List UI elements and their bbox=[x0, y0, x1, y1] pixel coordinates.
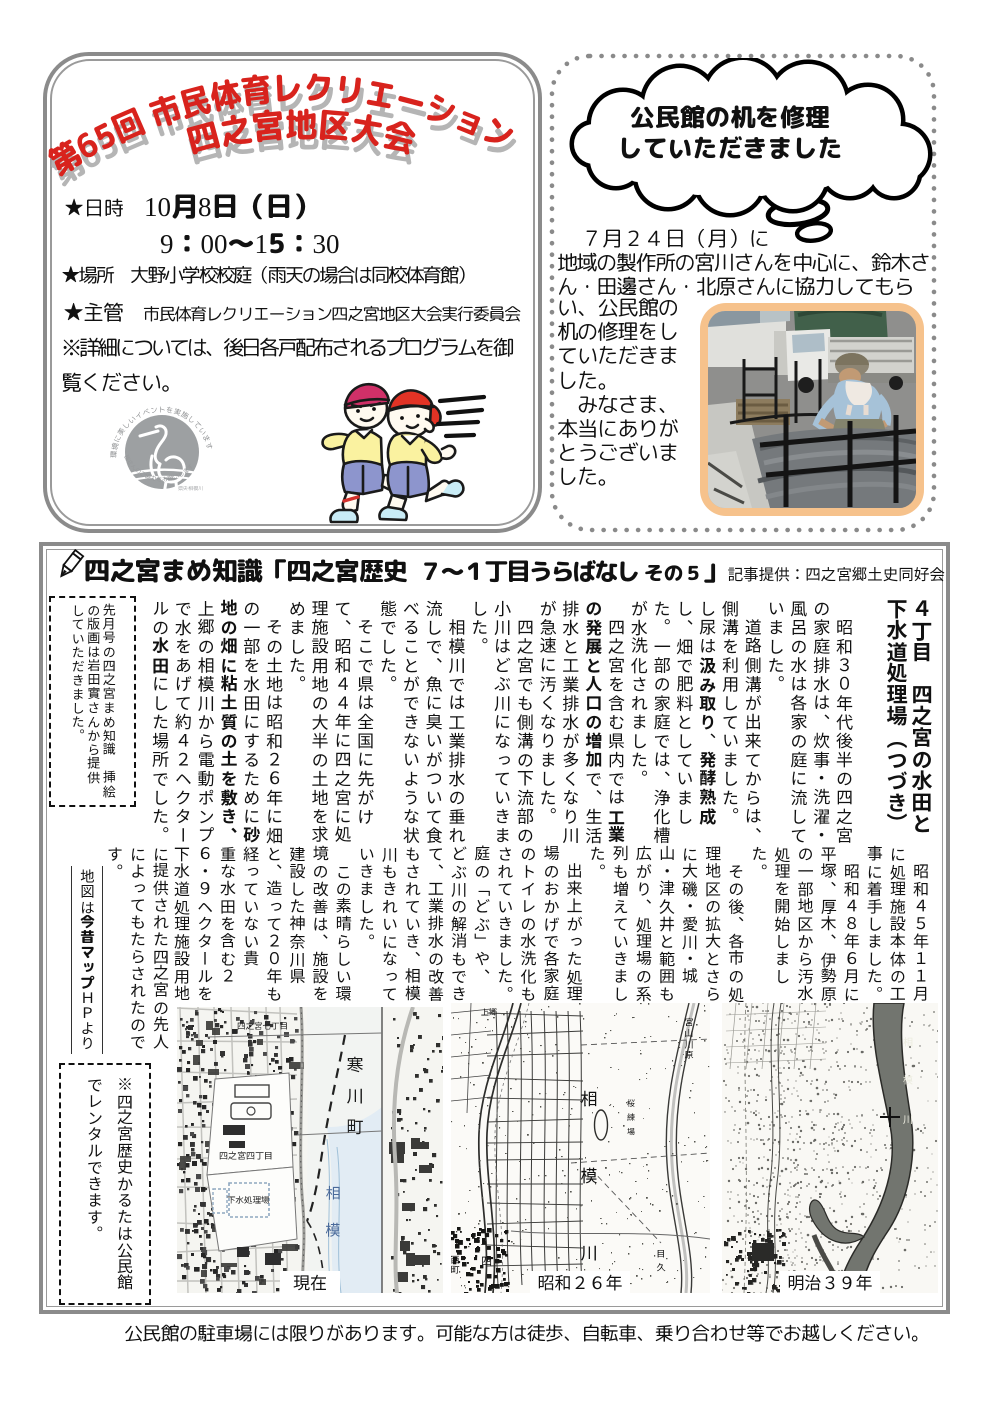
svg-text:四之宮七丁目: 四之宮七丁目 bbox=[237, 1020, 288, 1032]
svg-text:宮山川原: 宮山川原 bbox=[683, 1017, 696, 1061]
svg-text:相模川: 相模川 bbox=[577, 1089, 602, 1293]
svg-text:四之宮四丁目: 四之宮四丁目 bbox=[219, 1149, 273, 1162]
svg-text:下水処理場: 下水処理場 bbox=[227, 1194, 270, 1206]
svg-text:西町: 西町 bbox=[451, 1255, 462, 1275]
svg-text:桜練場: 桜練場 bbox=[626, 1098, 637, 1141]
svg-text:相模川: 相模川 bbox=[901, 1037, 916, 1151]
svg-text:目久: 目久 bbox=[655, 1249, 668, 1275]
svg-text:県央相模川: 県央相模川 bbox=[178, 485, 203, 492]
svg-text:相模: 相模 bbox=[323, 1185, 344, 1259]
svg-text:四: 四 bbox=[481, 1253, 492, 1269]
svg-text:寒川町: 寒川町 bbox=[343, 1055, 368, 1148]
svg-text:上郷: 上郷 bbox=[480, 1007, 497, 1018]
